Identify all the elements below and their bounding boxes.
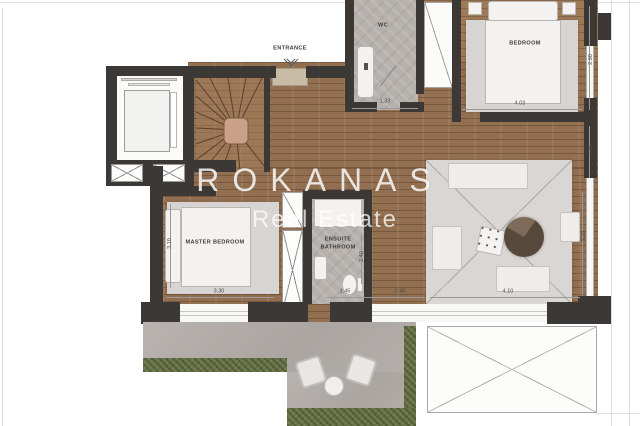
shaft-box-left	[111, 164, 143, 182]
living-sofa-left	[432, 226, 462, 270]
top-wall-left	[194, 66, 276, 78]
dim-ensuite-depth: 2.40	[359, 245, 364, 268]
dim-hall-depth: 3.05	[588, 139, 593, 162]
terrace-threshold	[306, 304, 332, 322]
floor-plan-image: ENTRANCE WC BEDROOM MASTER BEDROOM ENSUI…	[0, 0, 640, 426]
wc-sink	[357, 46, 374, 98]
wc-bottom-wall-left	[345, 102, 377, 112]
master-wardrobe-lower	[282, 230, 303, 310]
ensuite-label-line1: ENSUITE	[317, 237, 359, 243]
wc-faucet	[364, 63, 368, 70]
dimline-living	[430, 297, 580, 298]
dim-hall-seg-a: 1.45	[333, 289, 356, 294]
wc-label: WC	[366, 23, 400, 29]
dim-wc-width: 1.33	[373, 99, 396, 104]
south-wall-chunk-3	[330, 302, 372, 322]
dim-hall-seg-b: 0.96	[388, 289, 411, 294]
ensuite-label-line2: BATHROOM	[317, 245, 359, 251]
ensuite-vanity	[314, 256, 327, 280]
wc-bottom-wall-right	[400, 102, 424, 112]
dim-living-width: 4.10	[496, 289, 519, 294]
elevator-door-outer	[121, 78, 177, 81]
south-wall-chunk-2	[248, 302, 308, 322]
entrance-mat	[272, 68, 308, 86]
watermark-tagline: Real Estate	[240, 206, 410, 234]
bedroom-bottom-wall	[480, 112, 586, 122]
dim-bedroom-depth: 2.90	[588, 48, 593, 71]
stair-balustrade-wall	[264, 76, 270, 172]
projection-line-right-2	[629, 0, 630, 426]
dimline-hall	[326, 297, 424, 298]
dimline-bedroom	[462, 109, 582, 110]
living-coffee-table	[504, 217, 544, 257]
living-armchair	[560, 212, 580, 242]
dimline-master	[166, 297, 274, 298]
bedroom-nightstand-right	[562, 2, 576, 15]
dimline-wc	[352, 108, 418, 109]
elevator-door-inner	[128, 83, 170, 86]
outer-pier-right	[598, 13, 611, 40]
south-wall-chunk-1	[141, 302, 180, 324]
entrance-label: ENTRANCE	[266, 46, 314, 52]
closet-bedroom-wall	[452, 0, 461, 122]
terrace-table	[324, 376, 344, 396]
wc-left-wall	[345, 0, 354, 112]
bedroom-bed-pillows	[488, 1, 558, 21]
hedge-left	[143, 358, 287, 372]
dim-master-width: 3.30	[207, 289, 230, 294]
bedroom-label: BEDROOM	[497, 41, 553, 47]
living-window	[586, 178, 594, 298]
right-wall-top	[584, 0, 597, 46]
elevator-car	[124, 90, 170, 152]
spiral-staircase	[196, 78, 264, 170]
entrance-arrow-icon	[283, 55, 299, 65]
ensuite-toilet-tank	[357, 277, 363, 292]
bedroom-bed	[485, 20, 561, 104]
south-east-corner	[578, 296, 611, 324]
frame-left-line	[2, 8, 3, 426]
projection-line-right-1	[611, 0, 612, 426]
hedge-right	[404, 326, 416, 412]
void-area	[427, 326, 597, 413]
elevator-panel	[170, 92, 177, 148]
master-bedroom-label: MASTER BEDROOM	[171, 240, 259, 246]
hedge-bottom	[287, 408, 416, 426]
watermark-brand: ROKANAS	[170, 162, 470, 199]
bedroom-nightstand-left	[468, 2, 482, 15]
dim-living-depth: 3.20	[581, 225, 586, 248]
dim-bedroom-width: 4.03	[508, 101, 531, 106]
dim-master-depth: 3.10	[167, 232, 172, 255]
living-stool	[476, 226, 507, 257]
projection-line-bottom	[597, 413, 640, 414]
wc-right-wall	[416, 0, 424, 94]
hall-wardrobe	[424, 2, 453, 88]
